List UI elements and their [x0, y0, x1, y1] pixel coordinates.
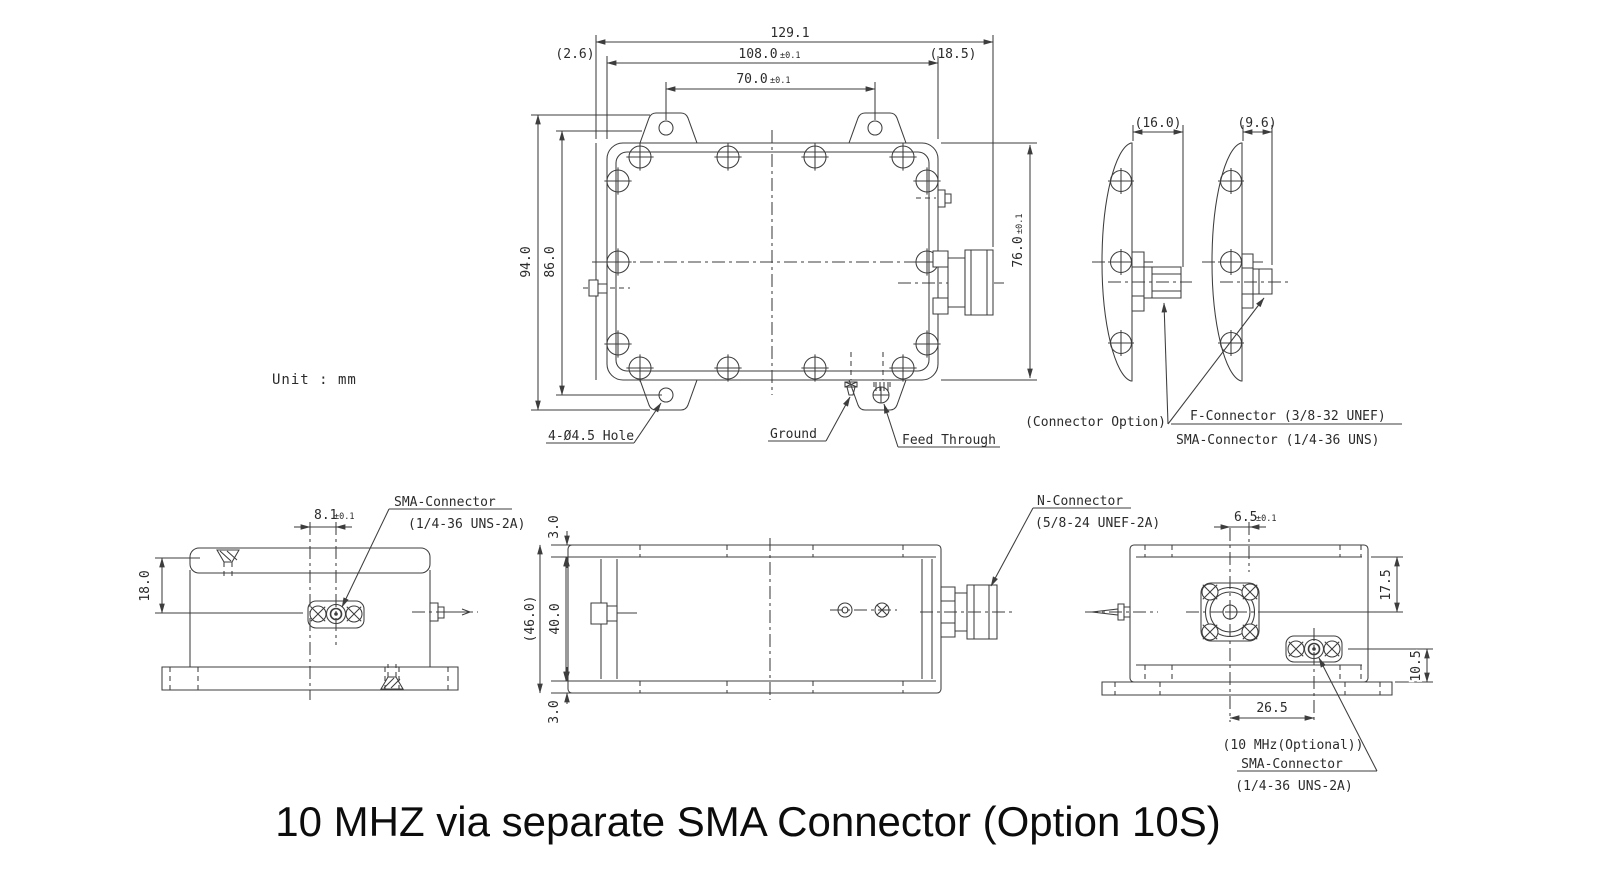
- label-10mhz-option: (10 MHz(Optional)): [1223, 738, 1364, 753]
- dim-right-offset: (18.5): [930, 47, 977, 62]
- label-ground: Ground: [770, 427, 817, 442]
- dim-hole-span: 70.0: [736, 72, 767, 87]
- label-sma-connector-option: SMA-Connector (1/4-36 UNS): [1176, 433, 1380, 448]
- front-elevation-view: 8.1 ±0.1 18.0 SMA-Connector (1/4-36 UNS-…: [138, 495, 525, 700]
- label-n-thread: (5/8-24 UNEF-2A): [1035, 516, 1160, 531]
- ground-lug: [845, 382, 857, 395]
- dim-f-depth: (16.0): [1135, 116, 1182, 131]
- dim-n-offset-tol: ±0.1: [1256, 514, 1276, 524]
- mount-hole: [868, 121, 882, 135]
- drawing-page: 129.1 (2.6) 108.0 ±0.1 (18.5) 70.0 ±0.1 …: [0, 0, 1616, 894]
- dim-inner-height: 40.0: [548, 603, 563, 634]
- label-feed-through: Feed Through: [902, 433, 996, 448]
- long-side-view: 3.0 (46.0) 40.0 3.0: [523, 515, 1012, 723]
- dim-sma-height: 18.0: [138, 570, 153, 601]
- dim-connector-spacing: 26.5: [1256, 701, 1287, 716]
- drawing-title: 10 MHZ via separate SMA Connector (Optio…: [275, 798, 1220, 845]
- side-feed-through: [589, 280, 607, 296]
- dim-hole-span-tol: ±0.1: [770, 76, 790, 86]
- dim-flange-height: 94.0: [519, 246, 534, 277]
- sma-connector-side-view: [591, 603, 637, 624]
- side-flange-views: (16.0) (9.6) (Connector Option) F-Connec…: [1025, 116, 1402, 448]
- dim-plate-height: 86.0: [543, 246, 558, 277]
- countersunk-screw: [381, 664, 403, 689]
- dim-body-width: 108.0: [738, 47, 777, 62]
- dim-body-width-tol: ±0.1: [780, 51, 800, 61]
- label-f-connector: F-Connector (3/8-32 UNEF): [1190, 409, 1386, 424]
- dim-lip-bottom: 3.0: [547, 700, 562, 723]
- label-sma-connector-10mhz: SMA-Connector: [1241, 757, 1343, 772]
- connector-side-view: 6.5 ±0.1 17.5 10.5 26.5 N-Connector (5/8…: [991, 494, 1433, 794]
- dim-n-offset: 6.5: [1234, 510, 1257, 525]
- unit-note: Unit : mm: [272, 372, 357, 388]
- mount-hole: [659, 121, 673, 135]
- dim-sma-height: 10.5: [1409, 650, 1424, 681]
- label-connector-option: (Connector Option): [1025, 415, 1166, 430]
- label-sma-thread-10mhz: (1/4-36 UNS-2A): [1235, 779, 1352, 794]
- label-sma-thread: (1/4-36 UNS-2A): [408, 517, 525, 532]
- dim-overall-height: (46.0): [523, 596, 538, 643]
- dim-body-height-tol: ±0.1: [1015, 214, 1025, 234]
- side-small-connector: [938, 190, 951, 207]
- dim-lip-top: 3.0: [547, 515, 562, 538]
- dim-body-height: 76.0: [1011, 236, 1026, 267]
- feed-through-pins: [874, 382, 890, 391]
- dim-sma-offset-tol: ±0.1: [334, 512, 354, 522]
- label-n-connector: N-Connector: [1037, 494, 1123, 509]
- top-plan-view: [583, 113, 1004, 410]
- top-view-dimensions: 129.1 (2.6) 108.0 ±0.1 (18.5) 70.0 ±0.1 …: [519, 26, 1037, 448]
- dim-overall-width: 129.1: [770, 26, 809, 41]
- label-mount-hole: 4-Ø4.5 Hole: [548, 429, 634, 444]
- dim-sma-depth: (9.6): [1237, 116, 1276, 131]
- dim-left-offset: (2.6): [555, 47, 594, 62]
- feed-through-screw: [873, 387, 889, 403]
- label-sma-connector: SMA-Connector: [394, 495, 496, 510]
- dim-n-height: 17.5: [1379, 569, 1394, 600]
